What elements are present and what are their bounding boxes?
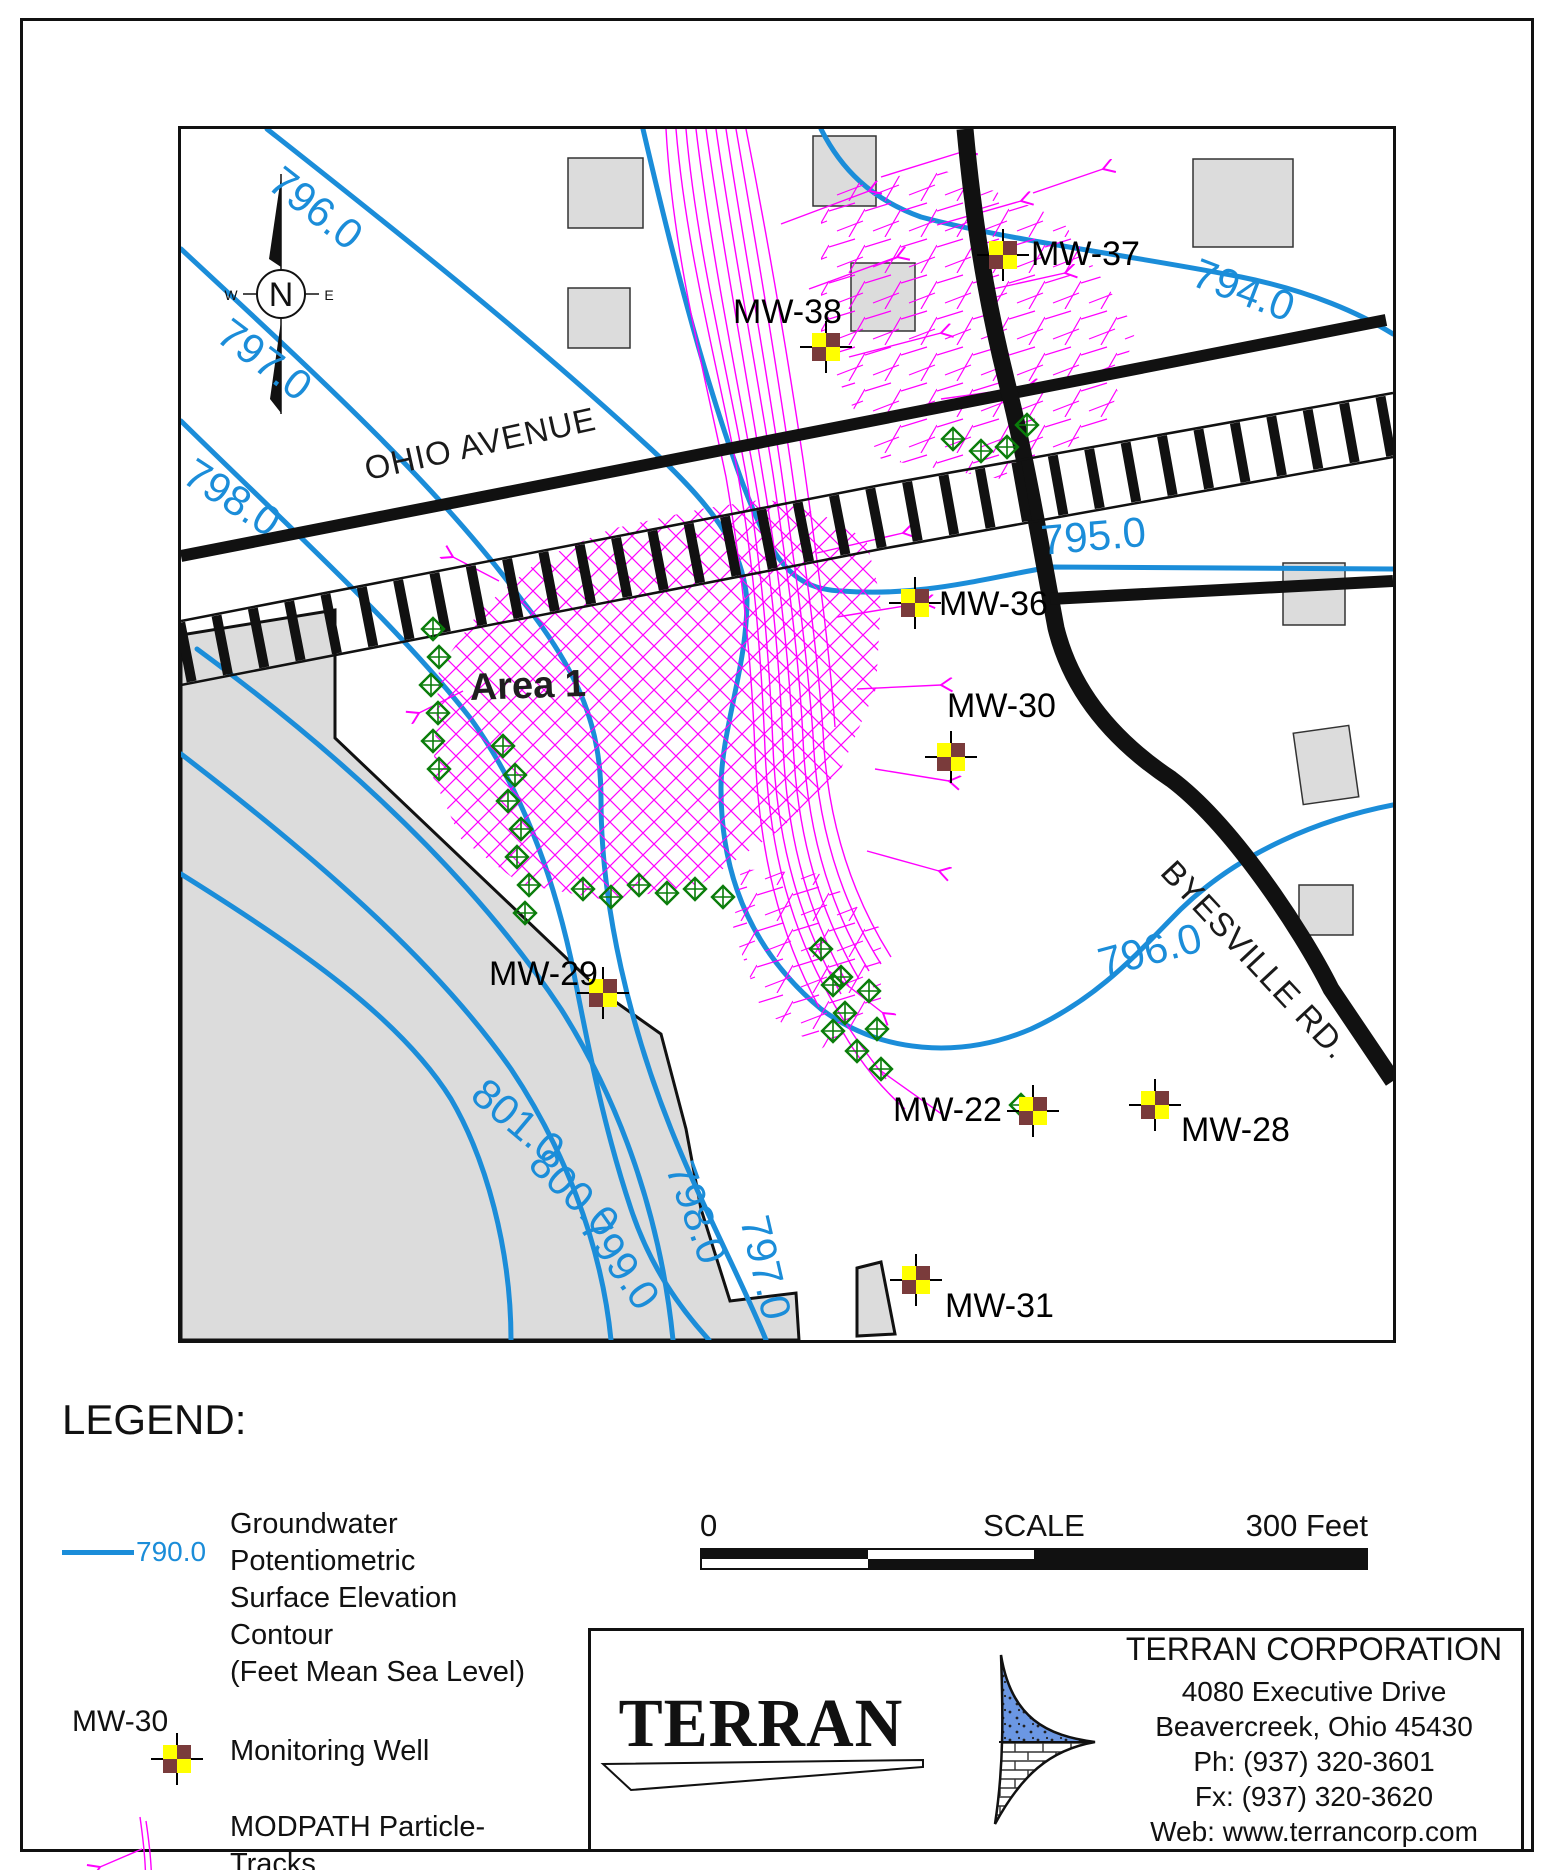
legend: LEGEND: 790.0 Groundwater Potentiometric…: [62, 1396, 562, 1870]
terran-logo: [951, 1652, 1101, 1828]
legend-entry-contour: 790.0 Groundwater Potentiometric Surface…: [62, 1506, 562, 1691]
scale-max: 300 Feet: [1246, 1508, 1368, 1544]
legend-contour-line1: Groundwater Potentiometric: [230, 1506, 562, 1580]
scale-bar: 0 SCALE 300 Feet: [700, 1508, 1368, 1570]
well-label-mw29: MW-29: [489, 955, 598, 994]
legend-well-label: Monitoring Well: [230, 1705, 429, 1770]
well-label-mw22: MW-22: [893, 1091, 1002, 1130]
particle-track-icon: [62, 1809, 212, 1870]
legend-entry-well: MW-30 Monitoring Well: [62, 1705, 562, 1791]
compass-e: E: [324, 287, 333, 303]
legend-entry-modpath: MODPATH Particle-Tracks where arrows dem…: [62, 1809, 562, 1870]
title-block: TERRAN: [588, 1628, 1524, 1852]
legend-title: LEGEND:: [62, 1396, 562, 1444]
company-fax: Fx: (937) 320-3620: [1121, 1779, 1507, 1814]
compass-w: W: [224, 287, 238, 303]
terran-wordmark: TERRAN: [591, 1684, 931, 1764]
legend-contour-line2: Surface Elevation Contour: [230, 1580, 562, 1654]
well-label-mw36: MW-36: [939, 585, 1048, 624]
well-label-mw30: MW-30: [947, 687, 1056, 726]
well-label-mw38: MW-38: [733, 293, 842, 332]
area-1-label: Area 1: [469, 663, 587, 710]
company-address1: 4080 Executive Drive: [1121, 1674, 1507, 1709]
scale-bar-graphic: [700, 1548, 1368, 1570]
site-map: N W E 796.0 797.0 798.0 794.0 795.: [178, 126, 1396, 1343]
legend-modpath-line1: MODPATH Particle-Tracks: [230, 1809, 562, 1870]
company-web: Web: www.terrancorp.com: [1121, 1814, 1507, 1849]
company-name: TERRAN CORPORATION: [1121, 1631, 1507, 1668]
company-phone: Ph: (937) 320-3601: [1121, 1744, 1507, 1779]
contour-label-795: 795.0: [1039, 508, 1148, 565]
company-address2: Beavercreek, Ohio 45430: [1121, 1709, 1507, 1744]
monitoring-well-icon: [122, 1713, 232, 1799]
compass-n: N: [269, 276, 294, 314]
contour-line-sample: [62, 1550, 134, 1555]
figure-page: N W E 796.0 797.0 798.0 794.0 795.: [0, 0, 1551, 1870]
contour-sample-value: 790.0: [136, 1536, 206, 1567]
well-label-mw31: MW-31: [945, 1287, 1054, 1326]
legend-contour-line3: (Feet Mean Sea Level): [230, 1654, 562, 1691]
well-label-mw37: MW-37: [1031, 235, 1140, 274]
well-label-mw28: MW-28: [1181, 1111, 1290, 1150]
